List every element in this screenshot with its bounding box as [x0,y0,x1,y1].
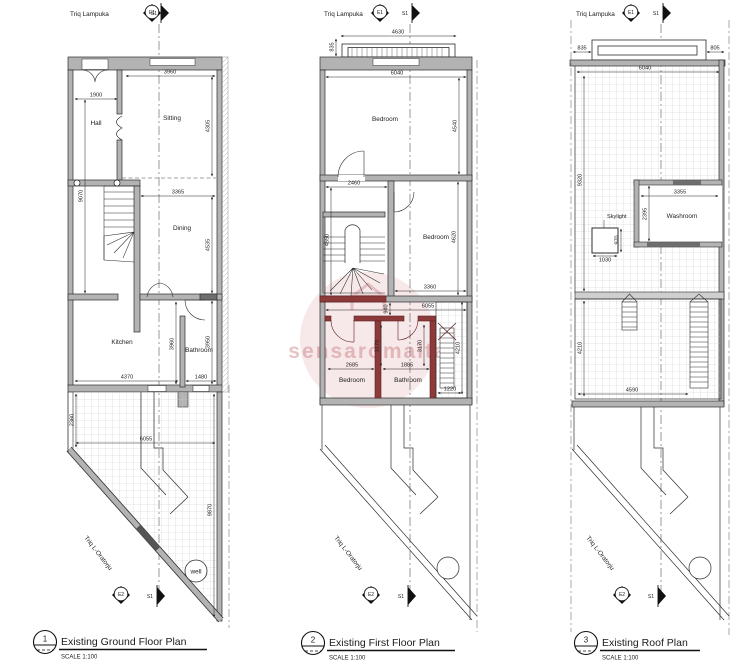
street-label-top: Triq Lampuka [324,11,363,18]
svg-text:S1: S1 [398,594,404,600]
dim-kitchen-width: 4370 [121,375,133,381]
elevation-marker-e2-icon: E2 [613,586,631,604]
entrance-opening [82,59,108,70]
section-marker-s1-bottom-icon: S1 [398,585,416,607]
plan-scale: SCALE 1:100 [61,655,98,661]
title-block-1: 1 Existing Ground Floor Plan SCALE 1:100 [34,631,208,661]
room-label-washroom: Washroom [667,213,698,220]
dim-lower-offset: 940 [384,304,390,313]
dim-yard-right: 9870 [208,504,214,516]
rear-door-opening [148,386,166,392]
door-swing [338,151,364,177]
svg-text:S1: S1 [653,11,659,17]
dim-washroom-width: 3355 [674,190,686,196]
section-marker-s1-icon: S1 [653,3,671,23]
svg-text:S1: S1 [147,594,153,600]
dim-right-height: 3950 [206,336,212,348]
rear-window-opening [193,386,209,392]
plan-scale: SCALE 1:100 [602,656,639,662]
rear-wall [572,401,724,407]
plan-ground-floor: Triq Lampuka E1 S1 [34,3,230,661]
plan-first-floor: sensaromalta Triq Lampuka E1 S1 [288,3,477,662]
column [74,180,80,186]
plan-scale: SCALE 1:100 [329,656,366,662]
column [114,180,120,186]
balcony-door-opening [373,59,419,66]
svg-text:E2: E2 [619,592,625,598]
dim-balcony-width: 4630 [392,30,404,36]
roof-parapet-band [575,292,724,299]
dim-left-height: 9070 [79,190,85,202]
dim-terrace-width: 1220 [444,387,456,393]
dim-dining-width: 3365 [172,190,184,196]
upper-roof-area [575,65,721,293]
dim-stair-height: 4550 [325,234,331,246]
well-label: well [189,569,201,576]
room-label-bedroom-mid: Bedroom [423,234,449,241]
street-label-side: Triq L-Oratorju [332,535,363,572]
mid-wall-red [320,296,386,302]
plan-title: Existing First Floor Plan [329,637,440,649]
dim-offset-right: 805 [710,46,719,52]
staircase [104,186,134,262]
svg-text:E1: E1 [377,10,383,16]
dim-sitting-width: 3960 [164,70,176,76]
dim-dining-height: 4535 [206,239,212,251]
title-block-2: 2 Existing First Floor Plan SCALE 1:100 [302,632,456,662]
svg-text:S1: S1 [151,11,157,17]
street-label-top: Triq Lampuka [576,11,615,18]
dim-bath-side-height: 3960 [170,338,176,350]
elevation-marker-e1-icon: E1 [622,4,640,22]
plan-title: Existing Ground Floor Plan [61,636,187,648]
section-marker-s1-bottom-icon: S1 [147,585,165,607]
well-circle [437,557,459,579]
stairwell-tall [690,294,708,388]
room-label-bedroom-rear: Bedroom [339,377,365,384]
dim-yard-left: 2360 [70,414,76,426]
terrace-void [436,302,467,398]
dim-roof-height: 9320 [578,174,584,186]
svg-text:E2: E2 [368,592,374,598]
dim-mid-height: 4620 [452,231,458,243]
yard: well [67,392,223,622]
plan-title: Existing Roof Plan [602,637,688,649]
dim-yard-width: 6055 [140,437,152,443]
dim-stair-width: 2460 [348,181,360,187]
plan-number: 3 [584,636,589,645]
dim-front-height: 4540 [453,120,459,132]
room-label-kitchen: Kitchen [111,339,133,346]
street-label-side: Triq L-Oratorju [584,535,615,572]
dim-offset-left: 835 [577,46,586,52]
dim-terrace-height: 4210 [456,342,462,354]
dim-washroom-height: 2395 [643,208,649,220]
room-label-bathroom: Bathroom [394,377,422,384]
floor-plan-drawing: Triq Lampuka E1 S1 [0,0,748,665]
window-opening [150,59,195,66]
elevation-marker-e1-icon: E1 [371,4,389,22]
dim-bed-width: 2685 [346,363,358,369]
balcony [342,44,455,57]
exterior-walls [68,57,222,392]
bathroom-door-swing [185,300,205,320]
svg-text:E1: E1 [628,10,634,16]
elevation-marker-e2-icon: E2 [362,586,380,604]
architectural-drawing-sheet: Triq Lampuka E1 S1 [0,0,748,665]
room-label-sitting: Sitting [163,115,181,122]
plan-number: 2 [311,636,316,645]
dim-sitting-height: 4305 [206,120,212,132]
title-block-3: 3 Existing Roof Plan SCALE 1:100 [575,632,701,662]
room-label-dining: Dining [173,225,192,232]
section-marker-s1-bottom-icon: S1 [648,585,666,607]
niche-arch [117,116,123,140]
dim-roof-width: 6040 [639,66,651,72]
dim-bath-height: 3170 [418,340,424,352]
street-label-side: Triq L-Oratorju [82,535,113,572]
dim-lower-roof-width: 4590 [626,388,638,394]
landing-door-swing [394,192,414,212]
room-label-hall: Hall [90,120,101,127]
street-label-top: Triq Lampuka [70,11,109,18]
well-circle [689,557,711,579]
svg-text:E2: E2 [118,592,124,598]
front-parapet [592,40,706,60]
room-label-bedroom-front: Bedroom [372,116,398,123]
entrance-door-swing [83,70,107,82]
dim-front-width: 6040 [391,71,403,77]
skylight-label: Skylight [607,214,627,220]
plan-roof: Triq Lampuka E1 S1 Washroom Skylight [570,3,729,662]
section-marker-s1-icon: S1 [402,3,420,23]
interior-walls [68,70,222,387]
dim-bed-height: 3170 [375,340,381,352]
dim-lower-width: 6055 [422,304,434,310]
dim-hall-width: 1900 [90,93,102,99]
yard-outline [572,407,729,620]
dim-skylight-width: 1030 [599,258,611,264]
yard-outline [320,405,477,620]
dim-mid-width: 3360 [424,285,436,291]
dim-bath-width: 1885 [401,363,413,369]
dim-lower-roof-height: 4210 [578,342,584,354]
party-wall-hatch [222,57,228,392]
dim-skylight-height: 970 [615,235,621,244]
plan-number: 1 [43,635,48,644]
dim-balcony-offset: 835 [330,42,336,51]
svg-text:S1: S1 [402,11,408,17]
dim-bathroom-width: 1480 [195,375,207,381]
svg-text:S1: S1 [648,594,654,600]
elevation-marker-e2-icon: E2 [112,586,130,604]
